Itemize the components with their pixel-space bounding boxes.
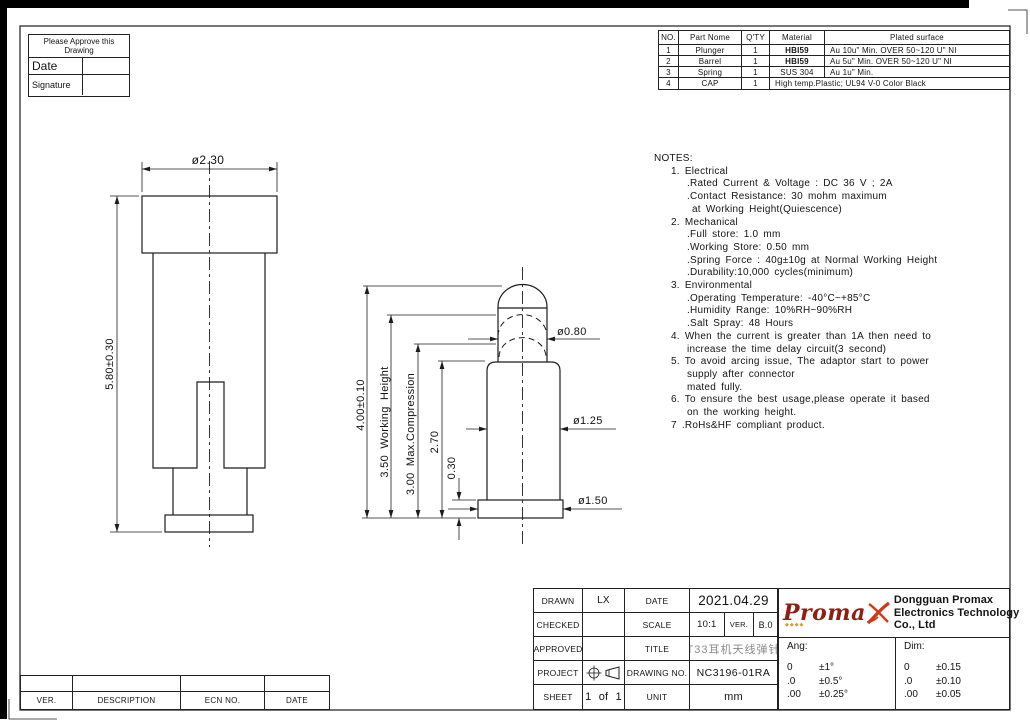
drawing-no-value: NC3196-01RA — [690, 661, 778, 685]
drawn-value: LX — [583, 589, 625, 613]
cell-part-name: Spring — [679, 67, 742, 78]
approve-box-header: Please Approve this Drawing — [29, 35, 129, 58]
cell-no: 3 — [659, 67, 679, 78]
revision-date-header: DATE — [265, 692, 329, 709]
date-label: DATE — [625, 589, 690, 613]
cell-part-name: CAP — [679, 78, 742, 89]
title-block: DRAWN LX DATE 2021.04.29 CHECKED SCALE 1… — [533, 588, 1010, 710]
dim-label-working-height: 3.50 Working Height — [379, 366, 391, 477]
drawing-sheet: { "approve_box": { "header": "Please App… — [0, 0, 1030, 728]
scale-label: SCALE — [625, 613, 690, 637]
note-line: supply after connector — [654, 369, 1014, 382]
unit-label: UNIT — [625, 685, 690, 709]
unit-value: mm — [690, 685, 778, 709]
note-line: 1. Electrical — [654, 166, 1014, 179]
revision-description-header: DESCRIPTION — [73, 692, 181, 709]
sheet-value: 1 of 1 — [583, 685, 625, 709]
dim-barrel-diameter: ø1.25 — [466, 415, 616, 431]
dim-total-height: 4.00±0.10 — [355, 286, 502, 518]
col-header-qty: Q'TY — [742, 31, 770, 45]
note-line: 6. To ensure the best usage,please opera… — [654, 394, 1014, 407]
approve-date-label: Date — [29, 58, 83, 74]
cell-material-plated: High temp.Plastic; UL94 V-0 Color Black — [770, 78, 1009, 89]
promax-logo-dots: ◆◆◆◆ — [785, 622, 804, 628]
dim-270: 2.70 — [429, 361, 485, 518]
promax-logo: Proma ◆◆◆◆ — [783, 602, 890, 624]
revision-ver-header: VER. — [21, 692, 73, 709]
note-line: mated fully. — [654, 382, 1014, 395]
dim-max-compression: 3.00 Max.Compression — [405, 344, 496, 518]
approve-signature-field — [83, 75, 129, 95]
note-line: .Working Store: 0.50 mm — [654, 242, 1014, 255]
note-line: .Contact Resistance: 30 mohm maximum — [654, 191, 1014, 204]
note-line: at Working Height(Quiescence) — [654, 204, 1014, 217]
company-name: Dongguan Promax Electronics Technology C… — [894, 594, 1019, 632]
ver-label: VER. — [725, 613, 755, 636]
revision-table: VER. DESCRIPTION ECN NO. DATE — [20, 675, 330, 710]
approve-signature-label: Signature — [29, 75, 83, 95]
note-line: increase the time delay circuit(3 second… — [654, 344, 1014, 357]
promax-logo-swoosh-icon — [866, 602, 890, 624]
dim-flange-diameter: ø1.50 — [448, 495, 622, 511]
note-line: .Spring Force : 40g±10g at Normal Workin… — [654, 255, 1014, 268]
cell-plated: Au 5u" Min. OVER 50~120 U" NI — [825, 56, 1009, 67]
cell-no: 1 — [659, 45, 679, 56]
cell-no: 4 — [659, 78, 679, 89]
note-line: 7 .RoHs&HF compliant product. — [654, 420, 1014, 433]
cell-qty: 1 — [742, 78, 770, 89]
approved-label: APPROVED — [534, 637, 583, 661]
note-line: on the working height. — [654, 407, 1014, 420]
approved-value — [583, 637, 625, 661]
notes-title: NOTES: — [654, 153, 1014, 166]
promax-logo-text: Proma — [783, 602, 866, 624]
drawing-no-label: DRAWING NO. — [625, 661, 690, 685]
date-value: 2021.04.29 — [690, 589, 778, 613]
title-label: TITLE — [625, 637, 690, 661]
col-header-part-name: Part Nome — [679, 31, 742, 45]
approve-date-field — [83, 58, 129, 74]
note-line: 3. Environmental — [654, 280, 1014, 293]
checked-label: CHECKED — [534, 613, 583, 637]
dim-label-total-height: 4.00±0.10 — [355, 379, 367, 431]
project-label: PROJECT — [534, 661, 583, 685]
cell-no: 2 — [659, 56, 679, 67]
note-line: 5. To avoid arcing issue, The adaptor st… — [654, 356, 1014, 369]
scale-value: 10:1 — [690, 613, 725, 636]
cell-qty: 1 — [742, 67, 770, 78]
revision-empty-cell — [265, 676, 329, 692]
dim-tip-diameter: ø0.80 — [468, 326, 600, 341]
angle-tolerance-box: Ang: 0±1° .0±0.5° .00±0.25° — [779, 638, 896, 709]
col-header-plated-surface: Plated surface — [825, 31, 1009, 45]
cell-part-name: Barrel — [679, 56, 742, 67]
revision-ecn-header: ECN NO. — [181, 692, 265, 709]
col-header-material: Material — [770, 31, 825, 45]
notes-block: NOTES: 1. Electrical .Rated Current & Vo… — [654, 153, 1014, 432]
drawn-label: DRAWN — [534, 589, 583, 613]
ver-value: B.0 — [754, 613, 777, 636]
dim-label-barrel-diameter: ø1.25 — [573, 415, 603, 427]
note-line: .Rated Current & Voltage : DC 36 V ; 2A — [654, 178, 1014, 191]
cell-material: HBI59 — [770, 45, 825, 56]
paper-corner-top-right — [1008, 10, 1027, 34]
approve-box: Please Approve this Drawing Date Signatu… — [28, 34, 130, 97]
company-box: Proma ◆◆◆◆ Dongguan Promax Electronics T… — [779, 589, 1009, 638]
cell-material: SUS 304 — [770, 67, 825, 78]
cell-plated: Au 1u" Min. — [825, 67, 1009, 78]
dim-label-flange-diameter: ø1.50 — [578, 495, 608, 507]
revision-empty-cell — [73, 676, 181, 692]
dim-label-left-width: ø2.30 — [192, 153, 225, 167]
dim-working-height: 3.50 Working Height — [379, 315, 496, 518]
note-line: .Salt Spray: 48 Hours — [654, 318, 1014, 331]
checked-value — [583, 613, 625, 637]
cell-qty: 1 — [742, 56, 770, 67]
note-line: .Full store: 1.0 mm — [654, 229, 1014, 242]
col-header-no: NO. — [659, 31, 679, 45]
note-line: .Durability:10,000 cycles(minimum) — [654, 267, 1014, 280]
sheet-label: SHEET — [534, 685, 583, 709]
dim-tolerance-box: Dim: 0±0.15 .0±0.10 .00±0.05 — [896, 638, 1009, 709]
revision-empty-cell — [21, 676, 73, 692]
parts-table: NO. Part Nome Q'TY Material Plated surfa… — [658, 30, 1010, 90]
note-line: .Operating Temperature: -40°C~+85°C — [654, 293, 1014, 306]
projection-symbol-icon — [585, 665, 622, 681]
title-value: T33耳机天线弹针 — [690, 637, 778, 661]
projection-symbol-cell — [583, 661, 625, 685]
revision-empty-cell — [181, 676, 265, 692]
front-view-figure: ø2.30 5.80±0.30 — [104, 153, 277, 547]
angle-tolerance-label: Ang: — [787, 641, 895, 652]
note-line: .Humidity Range: 10%RH~90%RH — [654, 305, 1014, 318]
dim-label-030: 0.30 — [446, 457, 458, 480]
dim-label-max-compression: 3.00 Max.Compression — [405, 373, 417, 495]
side-view-figure: 4.00±0.10 3.50 Working Height 3.00 Max.C… — [355, 267, 622, 547]
dim-label-270: 2.70 — [429, 431, 441, 454]
cell-part-name: Plunger — [679, 45, 742, 56]
cell-qty: 1 — [742, 45, 770, 56]
note-line: 4. When the current is greater than 1A t… — [654, 331, 1014, 344]
dim-label-tip-diameter: ø0.80 — [557, 326, 587, 338]
dim-030: 0.30 — [446, 457, 476, 540]
note-line: 2. Mechanical — [654, 217, 1014, 230]
dim-tolerance-label: Dim: — [904, 641, 1009, 652]
cell-material: HBI59 — [770, 56, 825, 67]
cell-plated: Au 10u" Min. OVER 50~120 U" NI — [825, 45, 1009, 56]
dim-label-left-height: 5.80±0.30 — [104, 338, 116, 390]
